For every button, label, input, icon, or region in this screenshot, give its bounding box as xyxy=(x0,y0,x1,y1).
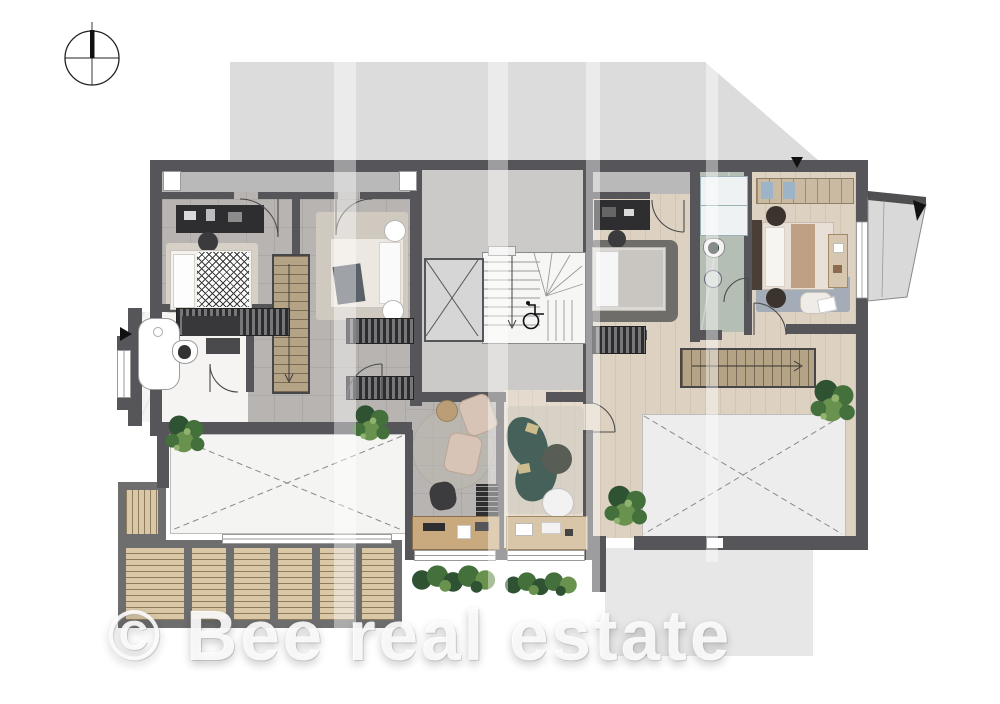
balcony xyxy=(857,191,927,301)
wheelchair-accessible-icon xyxy=(524,301,545,329)
planter-hedge-icon xyxy=(412,560,500,600)
light-streak xyxy=(586,62,600,628)
watermark: © Bee real estate xyxy=(108,596,732,677)
light-streak xyxy=(488,62,508,628)
elevator-cross-icon xyxy=(426,260,478,336)
light-streak xyxy=(334,62,356,628)
floor-plan-canvas: © Bee real estate xyxy=(0,0,1000,704)
plant-icon xyxy=(163,408,209,462)
stair-direction-arrow-icon xyxy=(285,256,802,382)
north-compass-icon xyxy=(65,22,119,85)
plant-icon xyxy=(350,400,394,448)
light-streak xyxy=(706,62,718,562)
plant-icon xyxy=(808,370,860,434)
north-marker-icon xyxy=(791,157,803,168)
entry-arrow-icon xyxy=(120,327,132,341)
plant-icon xyxy=(602,476,652,538)
